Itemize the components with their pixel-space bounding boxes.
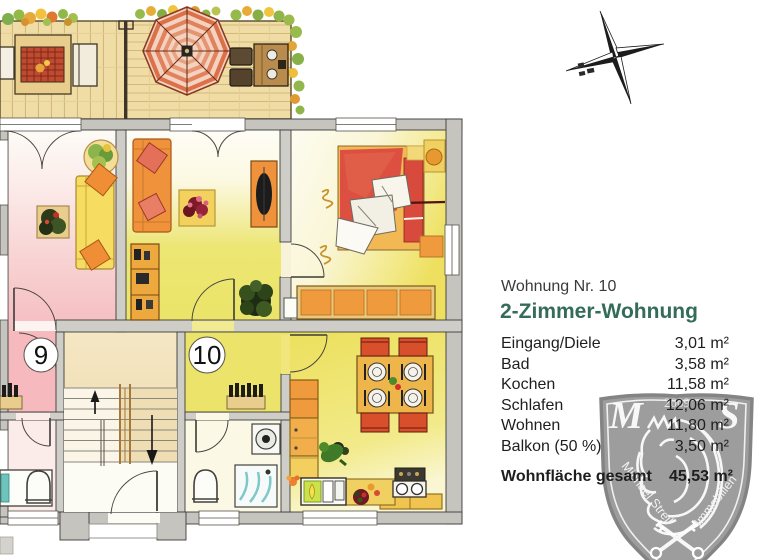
svg-text:Kochen: Kochen	[501, 376, 555, 393]
svg-text:M: M	[608, 395, 644, 437]
svg-text:Schlafen: Schlafen	[501, 397, 563, 414]
svg-text:Wohnung Nr. 10: Wohnung Nr. 10	[501, 278, 616, 295]
svg-text:Wohnen: Wohnen	[501, 417, 560, 434]
svg-text:Wohnfläche gesamt: Wohnfläche gesamt	[501, 468, 653, 485]
svg-text:11,58 m²: 11,58 m²	[667, 376, 730, 393]
svg-text:10: 10	[193, 340, 222, 370]
svg-text:3,58 m²: 3,58 m²	[675, 356, 730, 373]
svg-text:Eingang/Diele: Eingang/Diele	[501, 335, 601, 352]
svg-text:2-Zimmer-Wohnung: 2-Zimmer-Wohnung	[500, 300, 698, 323]
svg-text:3,01 m²: 3,01 m²	[675, 335, 730, 352]
svg-text:11,80 m²: 11,80 m²	[667, 417, 730, 434]
svg-text:3,50 m²: 3,50 m²	[675, 438, 730, 455]
svg-text:12,06 m²: 12,06 m²	[666, 397, 730, 414]
svg-text:Balkon (50 %): Balkon (50 %)	[501, 438, 602, 455]
svg-text:45,53 m²: 45,53 m²	[669, 468, 733, 485]
svg-text:Bad: Bad	[501, 356, 529, 373]
svg-text:9: 9	[34, 340, 48, 370]
